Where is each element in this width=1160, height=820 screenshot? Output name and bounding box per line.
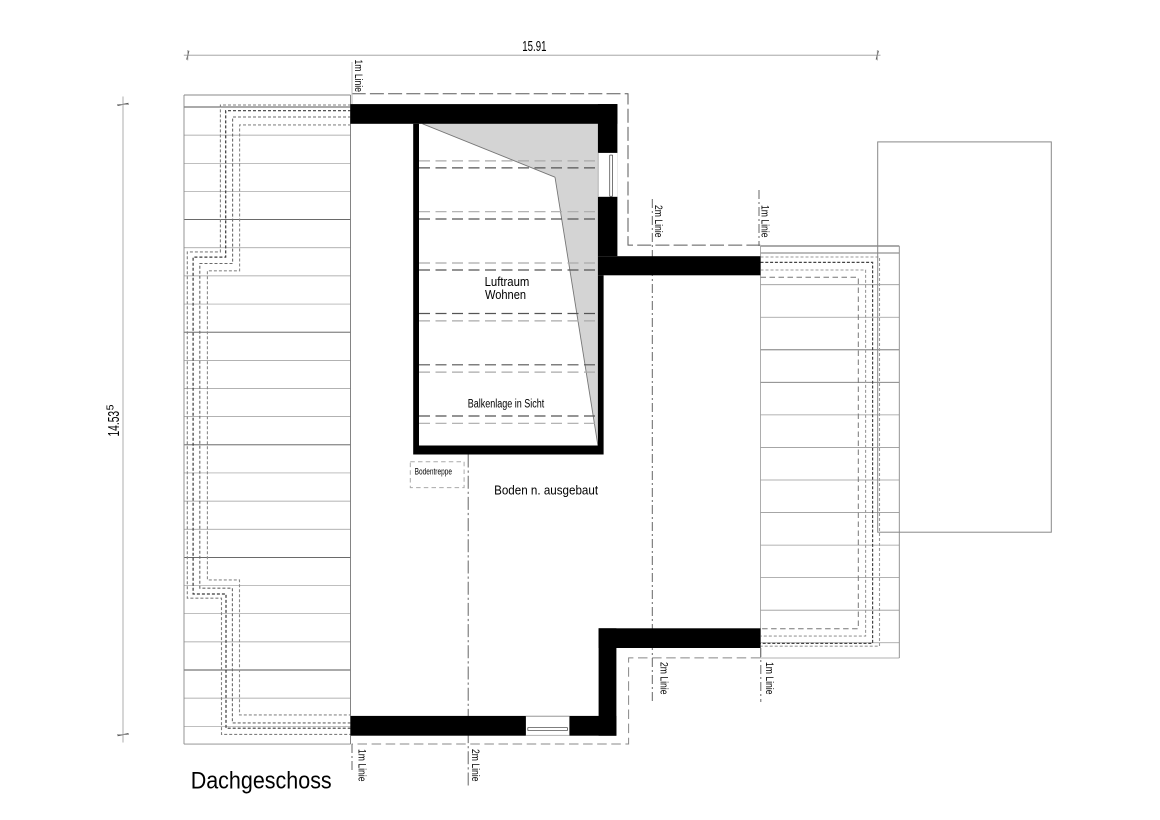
svg-text:Wohnen: Wohnen (485, 288, 526, 302)
svg-text:1m Linie: 1m Linie (763, 662, 775, 695)
svg-text:Bodentreppe: Bodentreppe (415, 466, 452, 477)
svg-text:1m Linie: 1m Linie (356, 749, 368, 782)
svg-text:2m Linie: 2m Linie (657, 662, 669, 695)
svg-text:Dachgeschoss: Dachgeschoss (191, 768, 332, 795)
svg-text:Boden n. ausgebaut: Boden n. ausgebaut (494, 482, 598, 497)
svg-text:2m Linie: 2m Linie (469, 749, 481, 782)
svg-text:Balkenlage in Sicht: Balkenlage in Sicht (468, 398, 545, 410)
svg-text:2m Linie: 2m Linie (652, 205, 664, 238)
svg-text:1m Linie: 1m Linie (759, 205, 771, 238)
svg-text:15.91: 15.91 (522, 39, 546, 55)
svg-text:1m Linie: 1m Linie (352, 60, 364, 93)
